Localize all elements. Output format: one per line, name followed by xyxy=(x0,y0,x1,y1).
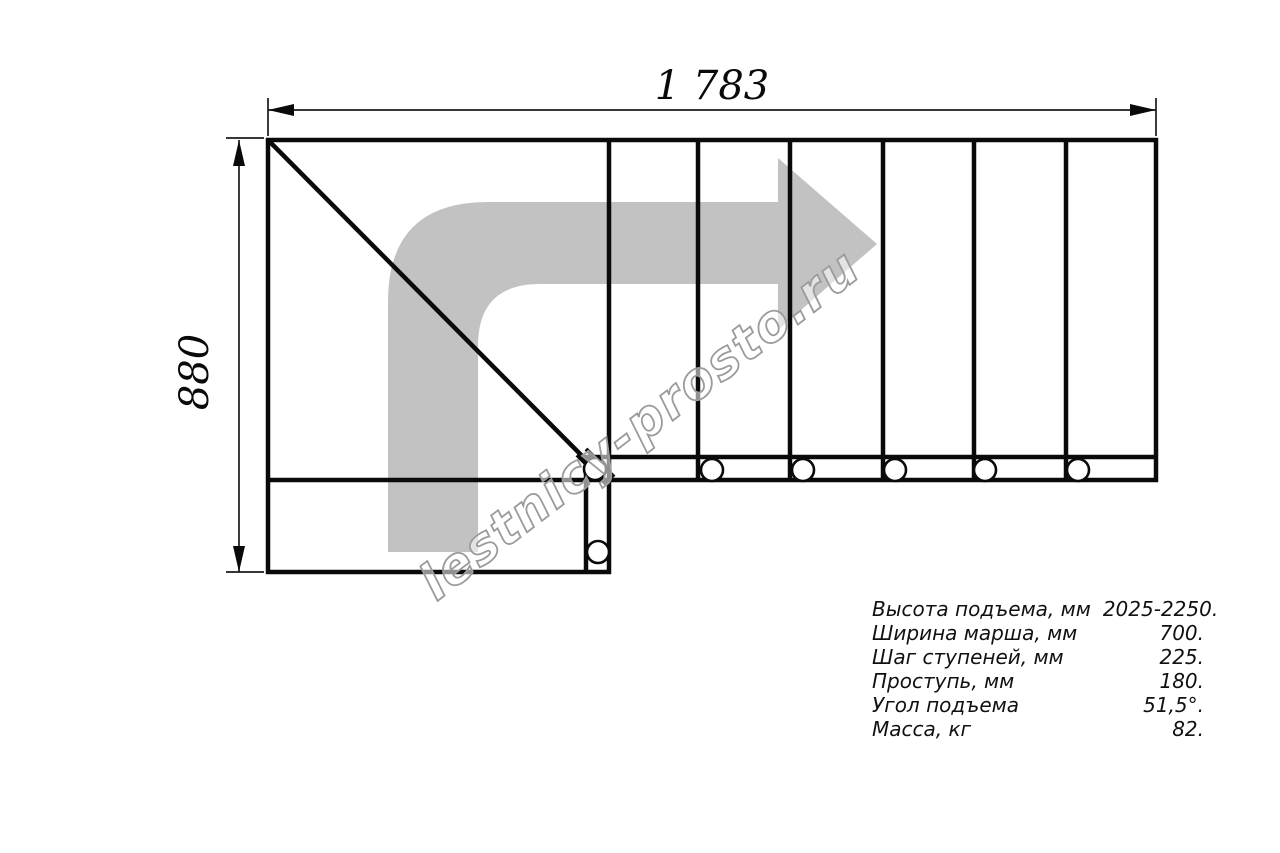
left-dimension: 880 xyxy=(172,138,264,572)
top-dimension: 1 783 xyxy=(268,63,1156,136)
spec-value: 225. xyxy=(1064,645,1204,669)
spec-value: 51,5°. xyxy=(1019,693,1204,717)
spec-row: Ширина марша, мм 700. xyxy=(872,621,1204,645)
spec-value: 700. xyxy=(1077,621,1204,645)
stair-plan-page: 1 783 880 lestnicy-prosto.ru Высота подъ… xyxy=(0,0,1280,853)
spec-row: Угол подъема 51,5°. xyxy=(872,693,1204,717)
dimension-arrowhead xyxy=(268,104,294,116)
post-circle xyxy=(792,459,814,481)
post-circle xyxy=(701,459,723,481)
spec-value: 180. xyxy=(1014,669,1204,693)
spec-label: Угол подъема xyxy=(872,693,1019,717)
spec-row: Масса, кг 82. xyxy=(872,717,1204,741)
post-circles xyxy=(584,458,1089,563)
post-circle xyxy=(884,459,906,481)
spec-row: Шаг ступеней, мм 225. xyxy=(872,645,1204,669)
spec-row: Проступь, мм 180. xyxy=(872,669,1204,693)
dimension-arrowhead xyxy=(1130,104,1156,116)
spec-value: 2025-2250. xyxy=(1091,597,1218,621)
top-dimension-label: 1 783 xyxy=(655,63,770,109)
spec-label: Масса, кг xyxy=(872,717,971,741)
spec-label: Проступь, мм xyxy=(872,669,1014,693)
specs-table: Высота подъема, мм 2025-2250. Ширина мар… xyxy=(872,597,1204,741)
spec-value: 82. xyxy=(971,717,1204,741)
post-circle xyxy=(587,541,609,563)
dimension-arrowhead xyxy=(233,140,245,166)
left-dimension-label: 880 xyxy=(172,334,218,410)
spec-label: Ширина марша, мм xyxy=(872,621,1077,645)
spec-row: Высота подъема, мм 2025-2250. xyxy=(872,597,1204,621)
dimension-arrowhead xyxy=(233,546,245,572)
post-circle xyxy=(1067,459,1089,481)
direction-arrow-icon xyxy=(388,158,877,552)
post-circle xyxy=(974,459,996,481)
spec-label: Шаг ступеней, мм xyxy=(872,645,1064,669)
spec-label: Высота подъема, мм xyxy=(872,597,1091,621)
